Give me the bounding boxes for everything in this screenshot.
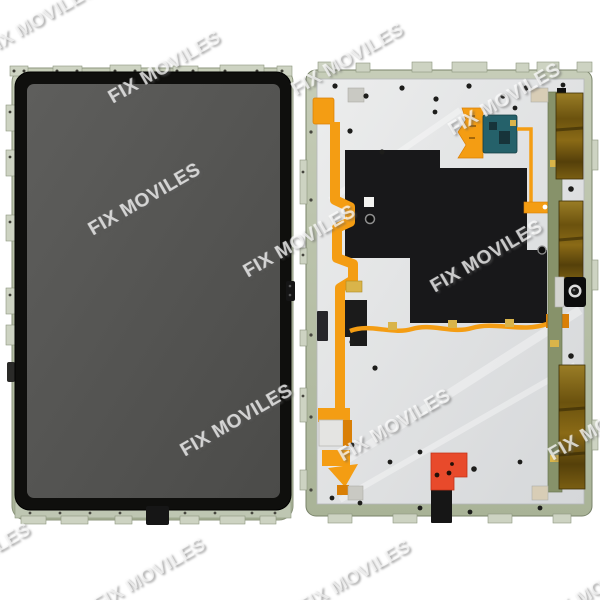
front-right-nub-hole: [289, 285, 292, 288]
camera-lens: [571, 287, 579, 295]
screw-on-graphite-right: [538, 246, 546, 254]
white-square-sticker: [364, 197, 374, 207]
product-photo: FIX MOVILES FIX MOVILES FIX MOVILES FIX …: [0, 0, 600, 600]
black-connector-tab: [431, 488, 452, 523]
front-bottom-connector: [146, 506, 169, 525]
antenna-flex-top: [556, 93, 583, 179]
back-panel: [300, 62, 598, 523]
screw-on-graphite: [366, 215, 375, 224]
black-edge-bar: [317, 311, 328, 341]
front-screen: [27, 84, 280, 498]
front-left-button-flex: [7, 362, 15, 382]
front-right-nub-hole2: [289, 294, 292, 297]
display-assembly-illustration: [0, 0, 600, 600]
front-left-tab-holes: [9, 111, 12, 297]
camera-bracket: [555, 277, 564, 307]
right-side-assembly: [548, 88, 586, 492]
left-flex-connector: [319, 420, 343, 446]
front-panel: [6, 65, 295, 525]
antenna-flex-bottom: [559, 365, 585, 489]
front-right-edge-connector: [286, 281, 295, 301]
back-top-mounting-tabs: [318, 62, 592, 72]
